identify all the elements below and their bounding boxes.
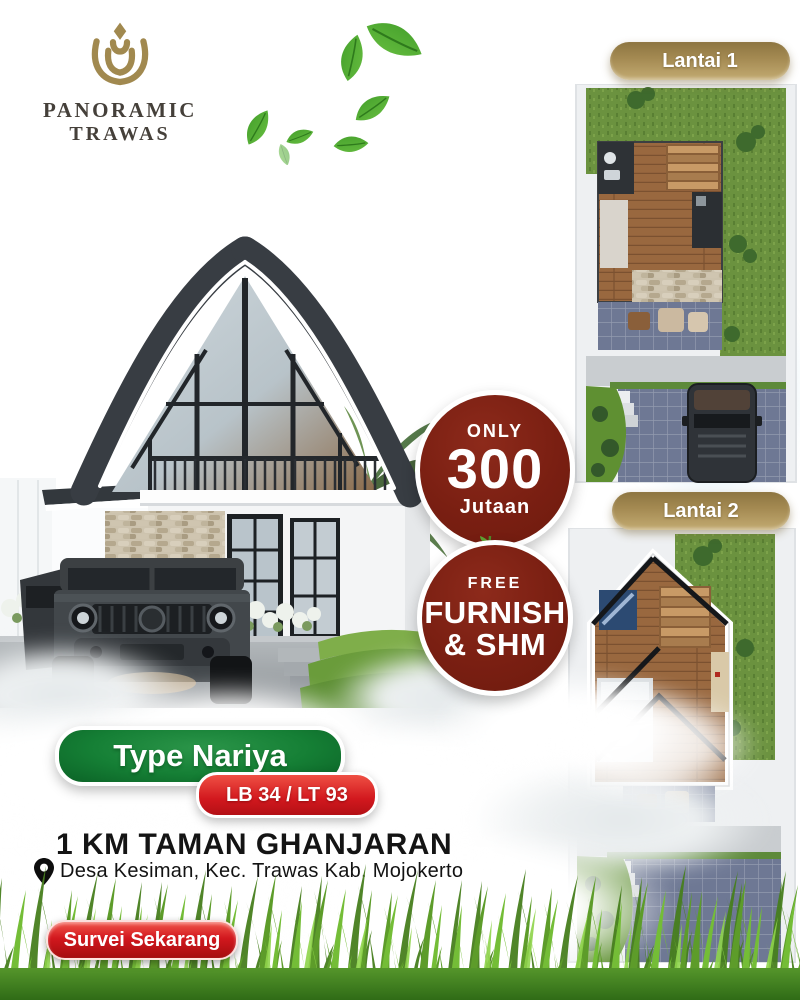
falling-leaves-icon: [230, 0, 570, 165]
spec-badge: LB 34 / LT 93: [196, 772, 378, 818]
cloud: [540, 690, 760, 800]
floorplan-1: [570, 84, 800, 484]
promo-furnish-label: FURNISH: [424, 597, 565, 629]
floor2-badge-label: Lantai 2: [663, 500, 739, 523]
brand-name-line2: TRAWAS: [30, 123, 210, 146]
type-badge-label: Type Nariya: [113, 738, 286, 774]
floor2-badge: Lantai 2: [612, 492, 790, 530]
spec-badge-label: LB 34 / LT 93: [226, 784, 348, 807]
survey-cta-button[interactable]: Survei Sekarang: [46, 920, 238, 960]
house-render: [0, 228, 450, 708]
price-circle-badge: ONLY 300 Jutaan: [415, 390, 575, 550]
stairs: [666, 144, 720, 190]
brand-name-line1: PANORAMIC: [30, 98, 210, 123]
tulip-logo-icon: [81, 18, 159, 96]
property-poster: PANORAMIC TRAWAS: [0, 0, 800, 1000]
floor1-badge: Lantai 1: [610, 42, 790, 80]
brand-logo: PANORAMIC TRAWAS: [30, 18, 210, 146]
promo-shm-label: & SHM: [444, 629, 546, 661]
logo-bud: [114, 23, 126, 40]
car-top-view: [682, 384, 762, 482]
promo-free-label: FREE: [468, 575, 523, 593]
survey-cta-label: Survei Sekarang: [64, 929, 221, 952]
price-unit: Jutaan: [460, 496, 530, 519]
floor1-badge-label: Lantai 1: [662, 50, 738, 73]
price-amount: 300: [447, 442, 543, 495]
promo-circle-badge: FREE FURNISH & SHM: [417, 540, 573, 696]
